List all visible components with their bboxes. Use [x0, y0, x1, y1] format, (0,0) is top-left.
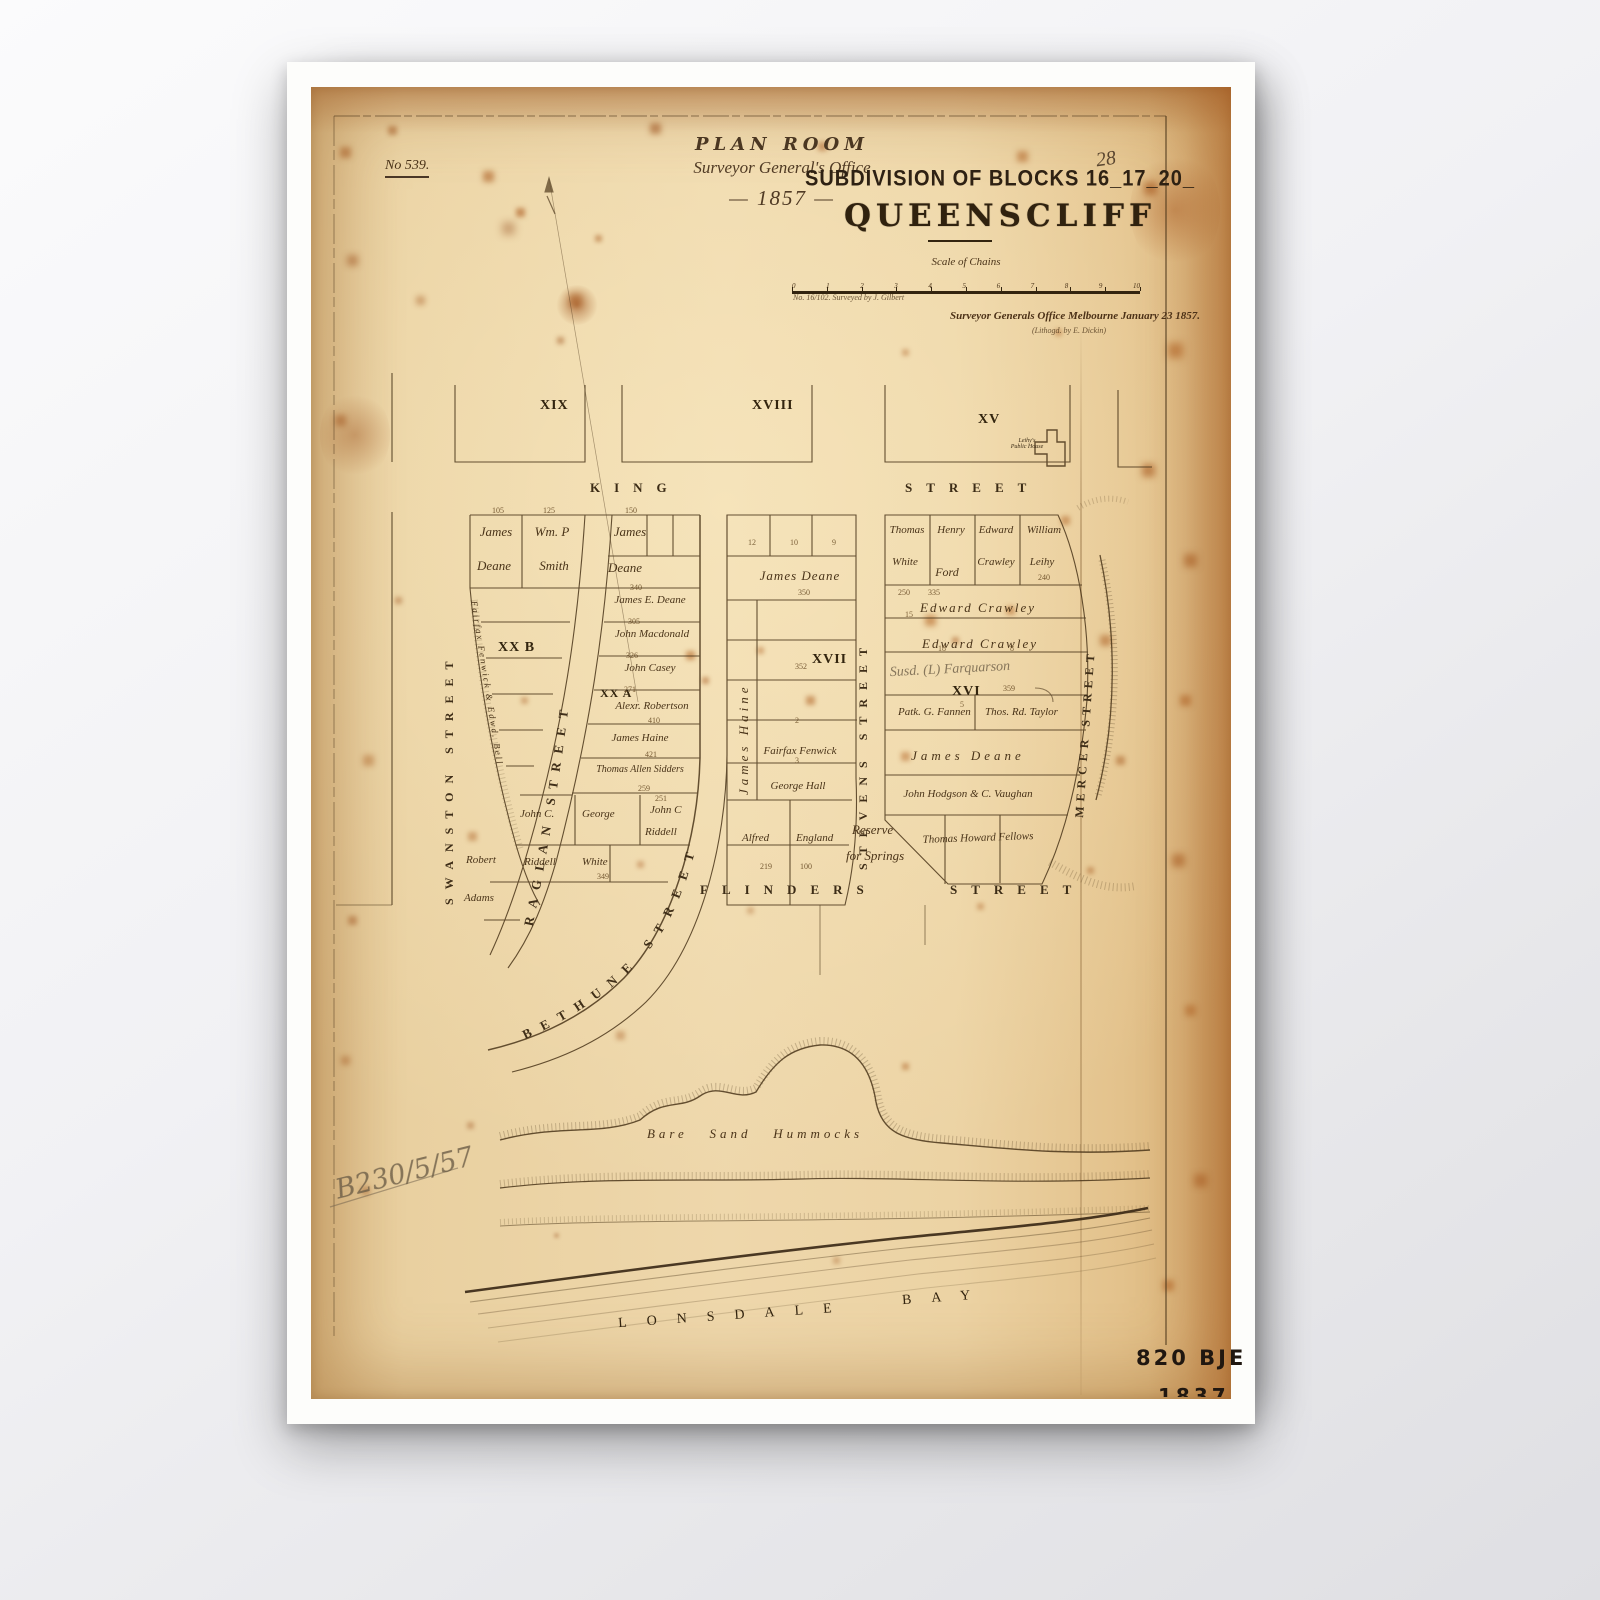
map-linework: RAGLAN STREET BETHUNE STREET [0, 0, 1600, 1600]
king-street-label2: STREET [905, 480, 1040, 496]
litho-note: (Lithogd. by E. Dickin) [1032, 326, 1106, 335]
dim: 251 [655, 794, 667, 803]
dim: 340 [630, 583, 642, 592]
dim: 240 [1038, 573, 1050, 582]
lot-number: 2 [795, 716, 799, 725]
lot-owner: Edward Crawley [920, 600, 1036, 616]
lot-owner: Robert [466, 854, 496, 866]
lot-number: 3 [795, 756, 799, 765]
catalog-stamp-year-partial: 1837 [1158, 1384, 1230, 1397]
block-xv-label: XV [978, 412, 1000, 428]
lot-owner: John C [650, 804, 681, 816]
dim: 150 [625, 506, 637, 515]
lot-owner: White [892, 556, 918, 568]
lot-number: 12 [748, 538, 756, 547]
block-xvii-label: XVII [812, 652, 847, 668]
james-haine-side-owner: James Haine [736, 600, 752, 795]
dim: 352 [795, 662, 807, 671]
dim: 250 [898, 588, 910, 597]
dim: 326 [626, 651, 638, 660]
reserve-label-line2: for Springs [846, 848, 904, 864]
plan-number: No 539. [385, 158, 429, 178]
catalog-stamp: 820 BJE [1136, 1346, 1246, 1370]
map-title: QUEENSCLIFF [844, 198, 1156, 234]
dim: 125 [543, 506, 555, 515]
public-house-line2: Public House [1008, 444, 1046, 450]
lot-owner: John Macdonald [615, 628, 689, 640]
dunes-label: Bare Sand Hummocks [647, 1126, 863, 1142]
flinders-street-label: FLINDERS [700, 882, 878, 898]
dim: 219 [760, 862, 772, 871]
lot-number: 5 [960, 700, 964, 709]
lot-owner: Deane [477, 558, 511, 574]
lot-owner: Crawley [977, 556, 1014, 568]
king-street-label: KING [590, 480, 681, 496]
photo-stage: RAGLAN STREET BETHUNE STREET No 539. 28 … [0, 0, 1600, 1600]
dim: 105 [492, 506, 504, 515]
lot-owner: Riddell [524, 856, 556, 868]
lot-owner: England [796, 832, 833, 844]
lot-owner: Wm. P [535, 524, 570, 540]
dim: 410 [648, 716, 660, 725]
lot-owner: John C. [520, 808, 554, 820]
lot-owner: George [582, 808, 615, 820]
lot-owner: John Casey [624, 662, 675, 674]
lot-number: 8 [1010, 644, 1014, 653]
dim: 100 [800, 862, 812, 871]
lot-owner: James E. Deane [614, 594, 685, 606]
title-rule [928, 240, 992, 242]
block-xviii-label: XVIII [752, 398, 794, 414]
dim: 271 [624, 685, 636, 694]
lot-owner: Deane [608, 560, 642, 576]
block-xvi-label: XVI [952, 684, 981, 700]
lot-owner: Edward [979, 524, 1013, 536]
lot-owner: William [1027, 524, 1061, 536]
lot-owner: James Deane [760, 568, 841, 584]
lot-owner: Henry [937, 524, 965, 536]
office-note: Surveyor Generals Office Melbourne Janua… [950, 310, 1200, 322]
lot-number: 18 [938, 644, 946, 653]
lot-owner: Thomas Allen Sidders [596, 764, 684, 775]
dim: 349 [597, 872, 609, 881]
lot-number: 10 [790, 538, 798, 547]
lot-owner: White [582, 856, 608, 868]
dim: 305 [628, 617, 640, 626]
dim: 350 [798, 588, 810, 597]
lot-owner: Adams [464, 892, 494, 904]
dim: 359 [1003, 684, 1015, 693]
lot-owner: James Deane [911, 748, 1025, 764]
surveyed-note: No. 16/102. Surveyed by J. Gilbert [793, 293, 904, 302]
lot-owner: Ford [935, 565, 959, 580]
block-xxb-label: XX B [498, 640, 535, 656]
lot-owner: Alexr. Robertson [615, 700, 688, 712]
dim: 259 [638, 784, 650, 793]
dim: 421 [645, 750, 657, 759]
lot-owner: Thomas [890, 524, 925, 536]
lot-owner: James [614, 524, 647, 540]
lot-owner: Leihy [1030, 556, 1054, 568]
lot-owner: Fairfax Fenwick [763, 745, 836, 757]
map-subtitle: SUBDIVISION OF BLOCKS 16_17_20_ [805, 167, 1195, 192]
scale-label: Scale of Chains [931, 256, 1000, 268]
lot-owner: Thos. Rd. Taylor [985, 706, 1058, 718]
lot-owner: Riddell [645, 826, 677, 838]
block-xix-label: XIX [540, 398, 569, 414]
lot-owner: James [480, 524, 513, 540]
flinders-street-label2: STREET [950, 882, 1085, 898]
lot-number: 9 [832, 538, 836, 547]
lot-owner: John Hodgson & C. Vaughan [903, 788, 1032, 800]
public-house-label: Leihy's Public House [1008, 438, 1046, 450]
lot-number: 15 [905, 610, 913, 619]
reserve-label-line1: Reserve [852, 822, 893, 838]
lot-owner: Alfred [742, 832, 769, 844]
lot-owner: James Haine [611, 732, 668, 744]
dim: 335 [928, 588, 940, 597]
lot-owner: Smith [539, 558, 569, 574]
stamp-plan-room: PLAN ROOM [695, 134, 869, 155]
swanston-street-label: SWANSTON STREET [442, 515, 457, 905]
lot-owner: George Hall [771, 780, 826, 792]
